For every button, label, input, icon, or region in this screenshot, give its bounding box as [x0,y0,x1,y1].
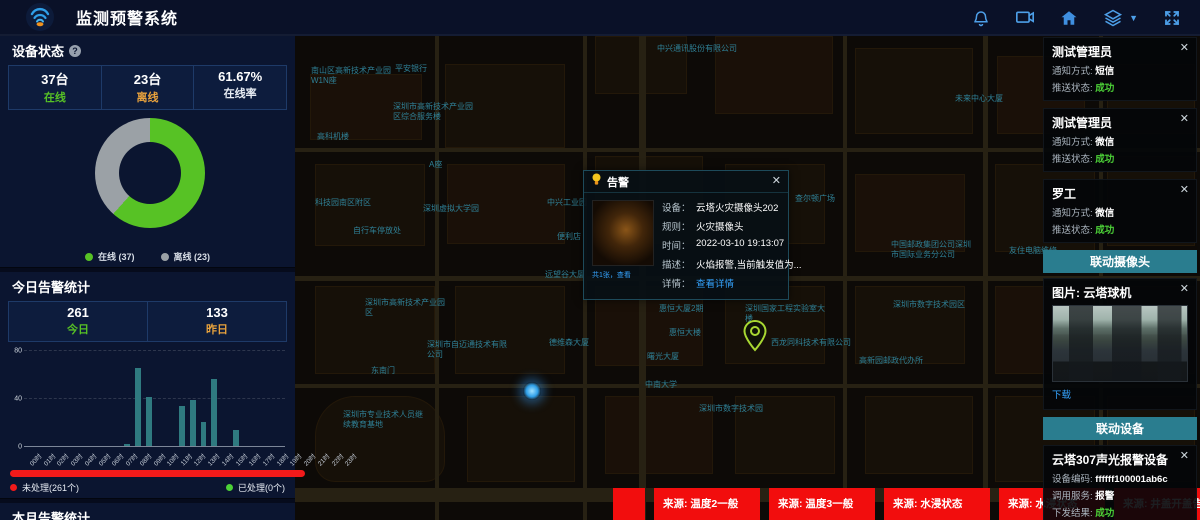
video-camera-icon[interactable] [1015,8,1035,28]
bottom-alert-card[interactable]: 来源: 水浸状态 [884,488,990,520]
today-alarm-section-title: 今日告警统计 [0,272,295,299]
page-title: 监测预警系统 [76,5,178,29]
view-detail-link[interactable]: 查看详情 [696,276,734,290]
map-place-label: 平安银行 [395,64,427,74]
alarm-progress-bar [10,470,305,477]
stat-today: 261 今日 [9,302,147,341]
map-place-label: 中兴工业园 [547,198,587,208]
popup-row-rule: 规则：火灾摄像头 [662,219,802,233]
today-bar-chart: 80 40 0 [24,350,285,446]
map-place-label: 西龙同科技术有限公司 [771,338,851,348]
linked-device-card: ✕ 云塔307声光报警设备 设备编码: ffffff100001ab6c 调用服… [1043,445,1197,520]
notification-card: ✕ 测试管理员 通知方式: 微信 推送状态: 成功 [1043,108,1197,172]
map-place-label: 德维森大厦 [549,338,589,348]
snapshot-view-link[interactable]: 共1张，查看 [592,270,654,280]
stat-yesterday: 133 昨日 [147,302,286,341]
map-pin-icon[interactable] [743,320,767,357]
alarm-bulb-icon [591,173,602,191]
popup-row-time: 时间：2022-03-10 19:13:07 [662,238,802,252]
map-place-label: 未来中心大厦 [955,94,1003,104]
bottom-alert-card[interactable]: 来源: 温度3一般 [769,488,875,520]
map-place-label: 便利店 [557,232,581,242]
chevron-down-icon[interactable]: ▼ [1129,13,1138,23]
left-sidebar: 设备状态 ? 37台 在线 23台 离线 61.67% 在线率 在线 (37) … [0,36,295,520]
map-place-label: A座 [429,160,442,170]
help-icon[interactable]: ? [69,45,81,57]
stat-online-rate: 61.67% 在线率 [193,66,286,109]
map-place-label: 高新园邮政代办所 [859,356,923,366]
map-place-label: 深圳虚拟大学园 [423,204,479,214]
camera-snapshot-image[interactable] [1052,305,1188,382]
alarm-progress-labels: 未处理(261个) 已处理(0个) [10,481,285,494]
map-place-label: 惠恒大楼 [669,328,701,338]
map-place-label: 高科机楼 [317,132,349,142]
close-icon[interactable]: ✕ [1180,185,1189,196]
map-place-label: 南山区高新技术产业园W1N座 [311,66,395,86]
today-bar-chart-bars [24,350,285,446]
device-location-marker[interactable] [523,382,541,400]
stat-offline: 23台 离线 [101,66,194,109]
fire-snapshot-image[interactable] [592,200,654,266]
popup-row-detail: 详情： 查看详情 [662,276,802,290]
popup-row-device: 设备：云塔火灾摄像头202 [662,200,802,214]
today-alarm-stats: 261 今日 133 昨日 [8,301,287,342]
camera-card: ✕ 图片: 云塔球机 下载 [1043,278,1197,410]
linked-camera-section-header[interactable]: 联动摄像头 [1043,250,1197,273]
map-place-label: 深圳市数字技术园区 [893,300,965,310]
popup-row-desc: 描述：火焰报警,当前触发值为... [662,257,802,271]
alarm-popup-close-icon[interactable]: ✕ [772,176,781,187]
home-icon[interactable] [1059,8,1079,28]
map-place-label: 科技园南区附区 [315,198,371,208]
alarm-popup-header: 告警 ✕ [584,171,788,193]
map-place-label: 东南门 [371,366,395,376]
close-icon[interactable]: ✕ [1180,284,1189,295]
close-icon[interactable]: ✕ [1180,43,1189,54]
device-donut-chart [95,118,205,228]
notification-bell-icon[interactable] [971,8,991,28]
map-place-label: 深圳市自迈通技术有限公司 [427,340,511,360]
bottom-alert-card[interactable]: 来源: 温度2一般 [654,488,760,520]
today-bar-chart-xlabels: 00时01时02时03时04时05时06时07时08时09时10时11时12时1… [24,450,285,460]
map-place-label: 深圳市数字技术园 [699,404,763,414]
map-place-label: 远望谷大厦 [545,270,585,280]
donut-legend: 在线 (37) 离线 (23) [0,250,295,263]
bottom-alert-card[interactable] [613,488,645,520]
download-link[interactable]: 下载 [1052,387,1071,401]
app-header: 监测预警系统 ▼ [0,0,1200,36]
device-status-section-title: 设备状态 ? [0,36,295,63]
app-logo-icon [26,3,54,31]
stat-online: 37台 在线 [9,66,101,109]
right-sidebar: ✕ 测试管理员 通知方式: 短信 推送状态: 成功 ✕ 测试管理员 通知方式: … [1043,37,1197,520]
map-place-label: 曙光大厦 [647,352,679,362]
camera-image-label: 图片: 云塔球机 [1052,284,1188,301]
linked-device-section-header[interactable]: 联动设备 [1043,417,1197,440]
dashboard: 中兴通讯股份有限公司未来中心大厦南山区高新技术产业园W1N座平安银行深圳市高新技… [0,0,1200,520]
month-alarm-section-title: 本月告警统计 [0,503,295,520]
fullscreen-icon[interactable] [1162,8,1182,28]
notification-card: ✕ 罗工 通知方式: 微信 推送状态: 成功 [1043,179,1197,243]
alarm-popup-title: 告警 [607,174,772,190]
map-place-label: 自行车停放处 [353,226,401,236]
map-place-label: 中兴通讯股份有限公司 [657,44,737,54]
map-place-label: 深圳市高新技术产业园区 [365,298,449,318]
close-icon[interactable]: ✕ [1180,114,1189,125]
map-place-label: 惠恒大厦2期 [659,304,703,314]
map-place-label: 中国邮政集团公司深圳市国际业务分公司 [891,240,975,260]
notification-card: ✕ 测试管理员 通知方式: 短信 推送状态: 成功 [1043,37,1197,101]
close-icon[interactable]: ✕ [1180,451,1189,462]
alarm-popup: 告警 ✕ 共1张，查看 设备：云塔火灾摄像头202 规则：火灾摄像头 时间：2 [583,170,789,300]
layers-icon[interactable] [1103,8,1123,28]
map-place-label: 深圳市专业技术人员继续教育基地 [343,410,427,430]
device-status-stats: 37台 在线 23台 离线 61.67% 在线率 [8,65,287,110]
map-place-label: 中南大学 [645,380,677,390]
map-place-label: 深圳市高新技术产业园区综合服务楼 [393,102,477,122]
